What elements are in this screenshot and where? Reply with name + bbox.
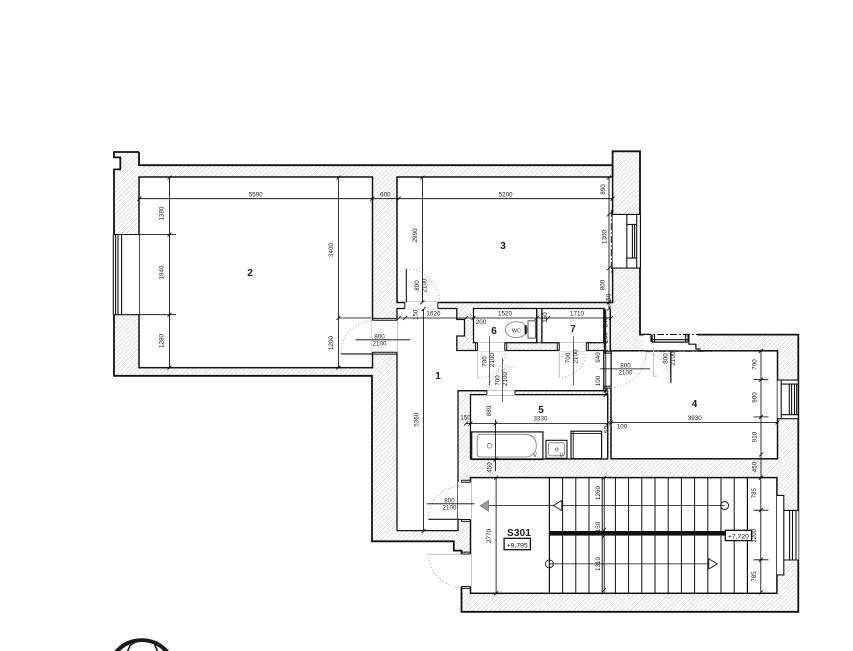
svg-text:450: 450 xyxy=(752,461,759,472)
svg-text:S301: S301 xyxy=(507,528,531,539)
svg-text:785: 785 xyxy=(751,571,758,582)
svg-text:2100: 2100 xyxy=(502,372,509,386)
svg-text:2100: 2100 xyxy=(422,278,429,292)
svg-text:910: 910 xyxy=(752,431,759,442)
svg-text:200: 200 xyxy=(602,332,609,343)
svg-text:3400: 3400 xyxy=(328,243,335,257)
svg-text:800: 800 xyxy=(374,333,385,340)
svg-text:150: 150 xyxy=(460,415,471,422)
svg-text:800: 800 xyxy=(620,362,631,369)
svg-text:U: U xyxy=(559,452,563,458)
svg-text:450: 450 xyxy=(487,462,494,473)
svg-text:1200: 1200 xyxy=(751,528,758,542)
svg-text:2100: 2100 xyxy=(489,353,496,367)
svg-text:2100: 2100 xyxy=(619,369,633,376)
svg-text:800: 800 xyxy=(414,280,421,291)
svg-text:3: 3 xyxy=(500,241,506,252)
svg-text:890: 890 xyxy=(600,184,607,195)
svg-text:800: 800 xyxy=(663,353,670,364)
svg-text:150: 150 xyxy=(606,293,613,304)
svg-text:150: 150 xyxy=(542,312,549,323)
svg-text:800: 800 xyxy=(444,497,455,504)
svg-text:940: 940 xyxy=(595,352,602,363)
svg-text:2770: 2770 xyxy=(486,529,493,543)
svg-text:3330: 3330 xyxy=(534,416,548,423)
svg-text:3930: 3930 xyxy=(688,415,702,422)
svg-text:800: 800 xyxy=(599,279,606,290)
svg-text:900: 900 xyxy=(752,392,759,403)
svg-text:100: 100 xyxy=(617,424,628,431)
svg-text:2990: 2990 xyxy=(412,228,419,242)
svg-text:5: 5 xyxy=(538,405,544,416)
svg-text:200: 200 xyxy=(476,319,487,326)
svg-text:6: 6 xyxy=(491,326,497,337)
svg-text:700: 700 xyxy=(752,359,759,370)
svg-text:1620: 1620 xyxy=(427,311,441,318)
svg-text:1380: 1380 xyxy=(159,206,166,220)
svg-text:50: 50 xyxy=(603,426,610,433)
svg-text:2100: 2100 xyxy=(373,340,387,347)
svg-text:700: 700 xyxy=(565,352,572,363)
svg-text:4: 4 xyxy=(692,399,698,410)
svg-text:2100: 2100 xyxy=(443,504,457,511)
svg-text:1310: 1310 xyxy=(595,557,602,571)
svg-text:+7,720: +7,720 xyxy=(728,534,749,541)
svg-text:5360: 5360 xyxy=(413,412,420,426)
svg-text:700: 700 xyxy=(495,375,502,386)
svg-text:700: 700 xyxy=(482,356,489,367)
svg-text:785: 785 xyxy=(751,487,758,498)
svg-text:1200: 1200 xyxy=(328,336,335,350)
svg-text:1520: 1520 xyxy=(498,311,512,318)
svg-text:5200: 5200 xyxy=(499,192,513,199)
svg-text:2100: 2100 xyxy=(573,349,580,363)
svg-text:1940: 1940 xyxy=(159,265,166,279)
svg-text:1300: 1300 xyxy=(602,230,609,244)
svg-text:1280: 1280 xyxy=(159,334,166,348)
svg-text:7: 7 xyxy=(570,324,576,335)
svg-text:1: 1 xyxy=(435,371,441,382)
svg-text:2100: 2100 xyxy=(670,351,677,365)
svg-text:150: 150 xyxy=(413,309,420,320)
svg-text:1710: 1710 xyxy=(570,311,584,318)
svg-text:WC: WC xyxy=(512,328,521,334)
svg-text:1260: 1260 xyxy=(595,486,602,500)
svg-text:+9,795: +9,795 xyxy=(507,542,528,549)
svg-text:5590: 5590 xyxy=(249,192,263,199)
svg-text:V: V xyxy=(533,453,537,459)
svg-text:100: 100 xyxy=(595,375,602,386)
svg-text:2: 2 xyxy=(247,268,253,279)
svg-text:880: 880 xyxy=(486,405,493,416)
svg-text:840: 840 xyxy=(602,316,609,327)
svg-text:600: 600 xyxy=(380,192,391,199)
svg-text:150: 150 xyxy=(595,521,602,532)
